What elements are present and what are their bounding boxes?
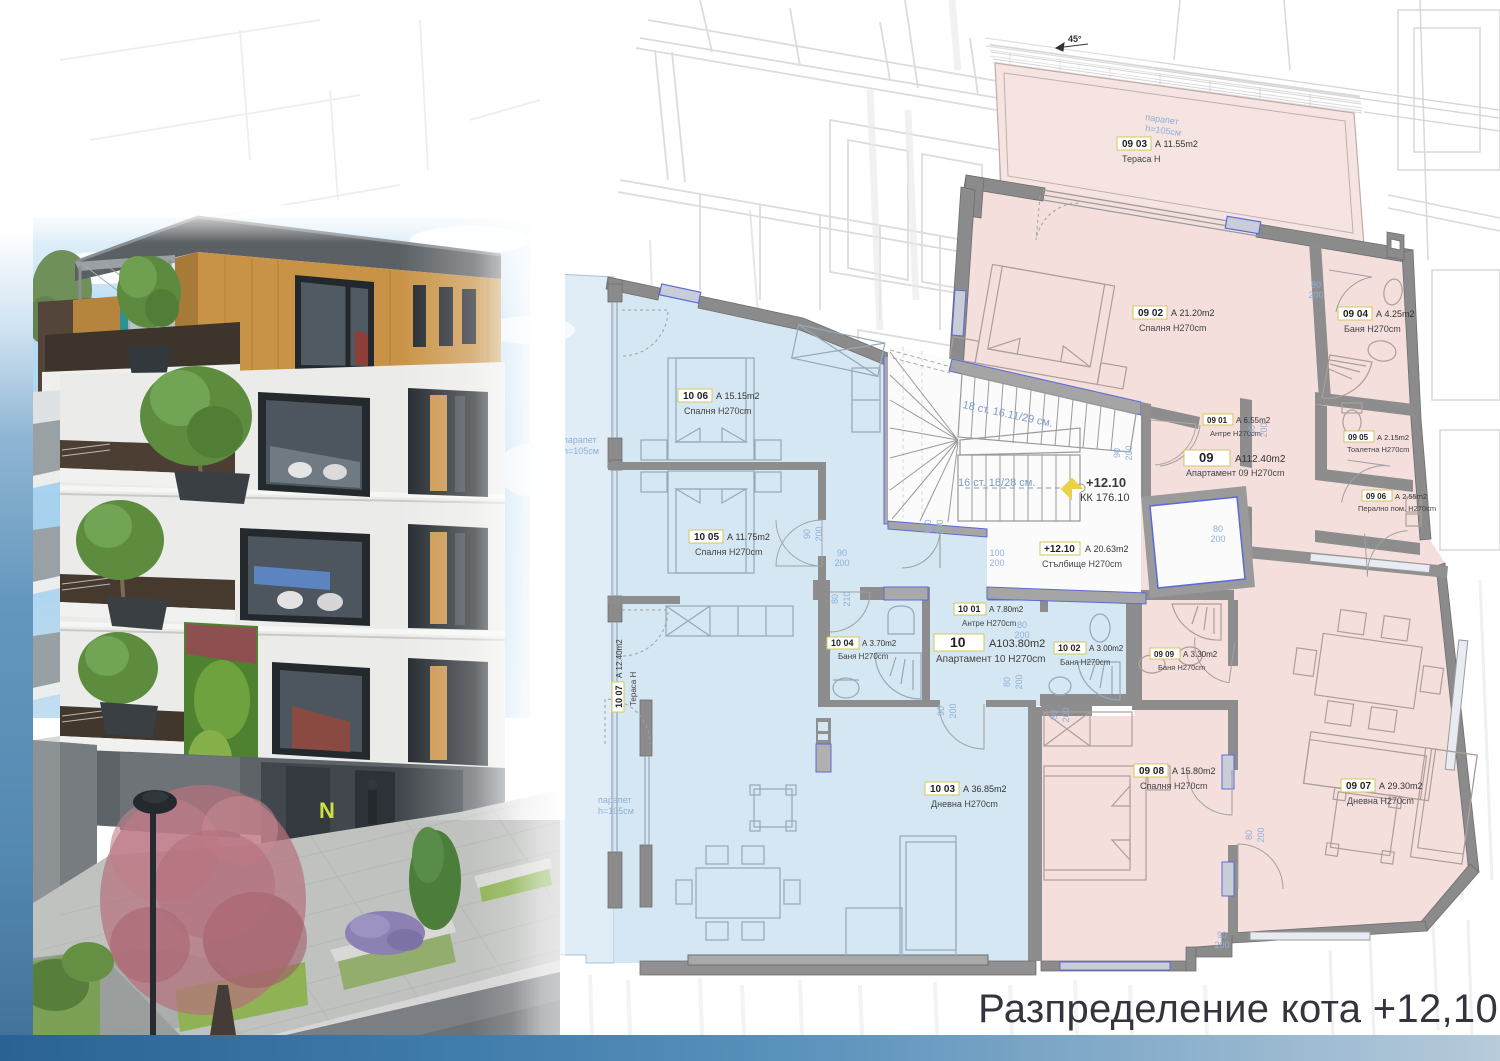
svg-text:10 04: 10 04	[831, 638, 854, 648]
svg-text:А 12.40m2: А 12.40m2	[615, 639, 624, 678]
svg-text:Дневна Н270cm: Дневна Н270cm	[1347, 796, 1414, 806]
svg-text:Спалня Н270cm: Спалня Н270cm	[1140, 781, 1208, 791]
svg-text:Баня Н270cm: Баня Н270cm	[1060, 658, 1111, 667]
svg-text:09 08: 09 08	[1139, 766, 1164, 777]
svg-text:парапет: парапет	[563, 435, 597, 445]
svg-text:А 3.30m2: А 3.30m2	[1183, 650, 1218, 659]
svg-text:Баня Н270cm: Баня Н270cm	[838, 652, 889, 661]
svg-text:200: 200	[989, 558, 1004, 568]
svg-text:200: 200	[1014, 674, 1024, 689]
svg-text:Разпределение кота +12,10: Разпределение кота +12,10	[978, 987, 1498, 1031]
svg-text:200: 200	[1124, 445, 1134, 460]
svg-text:80: 80	[1049, 710, 1059, 720]
svg-text:09: 09	[1199, 450, 1213, 465]
svg-text:А 11.75m2: А 11.75m2	[727, 532, 770, 542]
svg-text:А 21.20m2: А 21.20m2	[1171, 308, 1215, 318]
svg-text:А 20.63m2: А 20.63m2	[1085, 544, 1129, 554]
svg-text:09 01: 09 01	[1207, 416, 1228, 425]
svg-text:80: 80	[1311, 280, 1321, 290]
svg-text:80: 80	[1017, 620, 1027, 630]
svg-text:90: 90	[802, 529, 812, 539]
svg-text:200: 200	[1061, 707, 1071, 722]
svg-text:h=105см: h=105см	[563, 446, 599, 456]
svg-text:+12.10: +12.10	[1044, 544, 1075, 555]
svg-text:Баня Н270cm: Баня Н270cm	[1344, 324, 1401, 334]
svg-text:80: 80	[1244, 830, 1254, 840]
svg-text:А 3.70m2: А 3.70m2	[862, 639, 897, 648]
svg-text:h=105см: h=105см	[598, 806, 634, 816]
svg-text:Тоалетна Н270cm: Тоалетна Н270cm	[1347, 445, 1409, 454]
svg-text:200: 200	[814, 526, 824, 541]
svg-text:Тераса Н: Тераса Н	[629, 672, 638, 706]
svg-text:Спалня Н270cm: Спалня Н270cm	[684, 406, 752, 416]
svg-text:Дневна Н270cm: Дневна Н270cm	[931, 799, 998, 809]
svg-text:200: 200	[1308, 290, 1323, 300]
svg-text:А112.40m2: А112.40m2	[1235, 454, 1286, 465]
svg-text:+12.10: +12.10	[1086, 475, 1126, 490]
svg-text:10 02: 10 02	[1058, 643, 1081, 653]
svg-text:10 06: 10 06	[683, 391, 708, 402]
svg-text:Апартамент 09 Н270cm: Апартамент 09 Н270cm	[1186, 468, 1285, 478]
svg-text:А 4.25m2: А 4.25m2	[1376, 309, 1415, 319]
svg-text:А 2.55m2: А 2.55m2	[1395, 492, 1427, 501]
svg-text:N: N	[319, 798, 335, 823]
svg-text:200: 200	[1259, 422, 1269, 437]
svg-text:А 36.85m2: А 36.85m2	[963, 784, 1007, 794]
svg-text:КК 176.10: КК 176.10	[1080, 492, 1130, 504]
svg-text:90: 90	[936, 706, 946, 716]
svg-text:90: 90	[837, 548, 847, 558]
svg-text:16 ст. 18/28 см.: 16 ст. 18/28 см.	[958, 477, 1035, 489]
svg-text:80: 80	[1213, 524, 1223, 534]
svg-text:200: 200	[1214, 940, 1229, 950]
svg-text:80: 80	[1247, 425, 1257, 435]
svg-text:А 3.00m2: А 3.00m2	[1089, 644, 1124, 653]
svg-text:200: 200	[1210, 534, 1225, 544]
svg-text:80: 80	[830, 594, 840, 604]
svg-text:А 29.30m2: А 29.30m2	[1379, 781, 1423, 791]
svg-text:200: 200	[935, 519, 945, 534]
svg-text:Апартамент 10 Н270cm: Апартамент 10 Н270cm	[936, 654, 1045, 665]
svg-text:Перално пом. Н270cm: Перално пом. Н270cm	[1358, 504, 1436, 513]
svg-text:А 15.80m2: А 15.80m2	[1172, 766, 1216, 776]
svg-text:09 07: 09 07	[1346, 781, 1371, 792]
svg-text:45°: 45°	[1068, 34, 1082, 44]
svg-text:09 04: 09 04	[1343, 309, 1368, 320]
svg-text:09 06: 09 06	[1366, 492, 1387, 501]
svg-text:09 05: 09 05	[1348, 433, 1369, 442]
svg-text:10 01: 10 01	[958, 604, 981, 614]
svg-text:парапет: парапет	[598, 795, 632, 805]
svg-text:10 03: 10 03	[930, 784, 955, 795]
svg-text:80: 80	[1002, 677, 1012, 687]
svg-text:200: 200	[1256, 827, 1266, 842]
svg-text:90: 90	[1112, 448, 1122, 458]
svg-text:200: 200	[1014, 630, 1029, 640]
svg-text:200: 200	[948, 703, 958, 718]
svg-text:Антре Н270cm: Антре Н270cm	[962, 619, 1017, 628]
svg-text:10 07: 10 07	[614, 685, 624, 708]
svg-text:Баня Н270cm: Баня Н270cm	[1158, 663, 1205, 672]
svg-text:А 7.80m2: А 7.80m2	[989, 605, 1024, 614]
svg-text:200: 200	[834, 558, 849, 568]
svg-text:09 02: 09 02	[1138, 308, 1163, 319]
svg-text:100: 100	[989, 548, 1004, 558]
svg-text:210: 210	[842, 591, 852, 606]
svg-text:10 05: 10 05	[694, 532, 719, 543]
svg-text:09 03: 09 03	[1122, 139, 1147, 150]
svg-text:Тераса Н: Тераса Н	[1122, 154, 1161, 164]
svg-text:90: 90	[1217, 930, 1227, 940]
svg-text:А 2.15m2: А 2.15m2	[1377, 433, 1409, 442]
svg-text:Спалня Н270cm: Спалня Н270cm	[1139, 323, 1207, 333]
svg-text:А 11.55m2: А 11.55m2	[1155, 139, 1198, 149]
svg-text:Спалня Н270cm: Спалня Н270cm	[695, 547, 763, 557]
svg-text:Стълбище Н270cm: Стълбище Н270cm	[1042, 559, 1122, 569]
svg-text:100: 100	[923, 519, 933, 534]
svg-text:09 09: 09 09	[1154, 650, 1175, 659]
svg-text:10: 10	[950, 634, 966, 650]
svg-text:А 15.15m2: А 15.15m2	[716, 391, 760, 401]
